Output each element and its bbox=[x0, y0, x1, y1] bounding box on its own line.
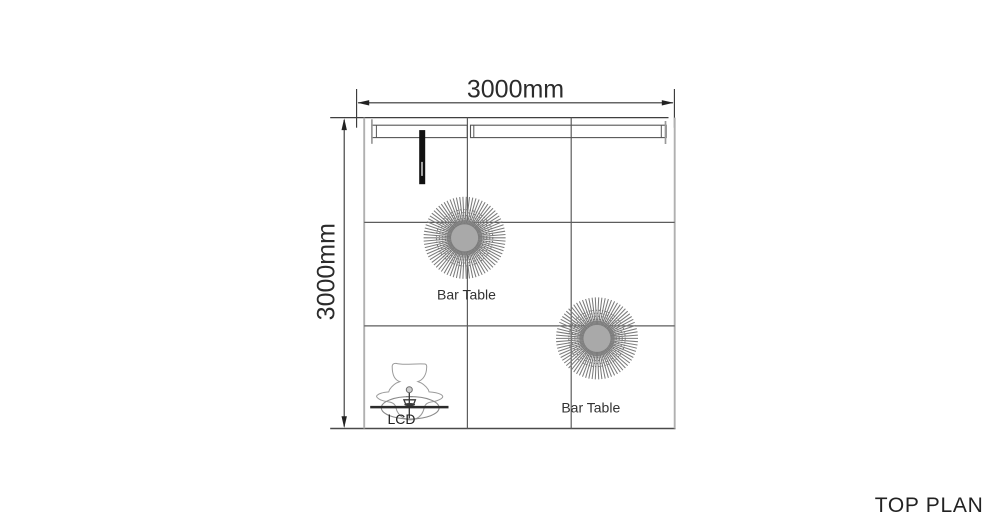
svg-text:3000mm: 3000mm bbox=[312, 223, 340, 320]
svg-text:TOP PLAN: TOP PLAN bbox=[875, 494, 984, 517]
svg-text:3000mm: 3000mm bbox=[467, 75, 564, 103]
svg-text:Bar Table: Bar Table bbox=[437, 286, 496, 302]
svg-text:Bar Table: Bar Table bbox=[561, 399, 620, 415]
svg-text:LCD: LCD bbox=[387, 411, 415, 427]
